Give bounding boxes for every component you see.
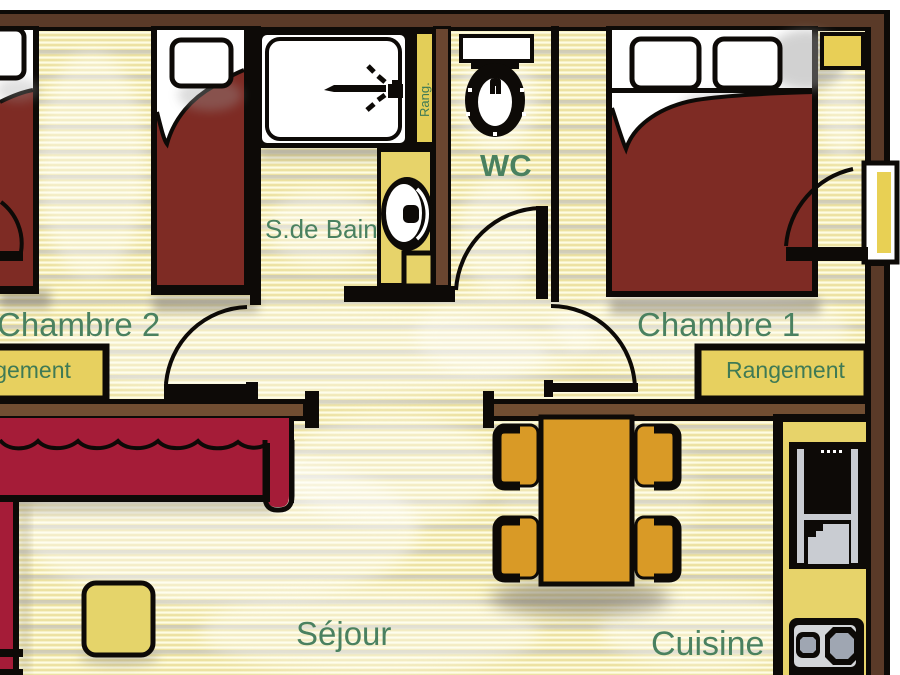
svg-text:Cuisine: Cuisine	[651, 625, 764, 663]
svg-text:Rangement: Rangement	[726, 357, 846, 383]
svg-text:Chambre 2: Chambre 2	[0, 306, 160, 343]
svg-text:Rangement: Rangement	[0, 357, 72, 383]
svg-text:Séjour: Séjour	[296, 615, 391, 652]
svg-text:Rang.: Rang.	[417, 82, 432, 117]
svg-text:Chambre 1: Chambre 1	[637, 306, 800, 343]
svg-text:WC: WC	[480, 148, 532, 183]
svg-text:S.de Bain: S.de Bain	[265, 214, 378, 244]
